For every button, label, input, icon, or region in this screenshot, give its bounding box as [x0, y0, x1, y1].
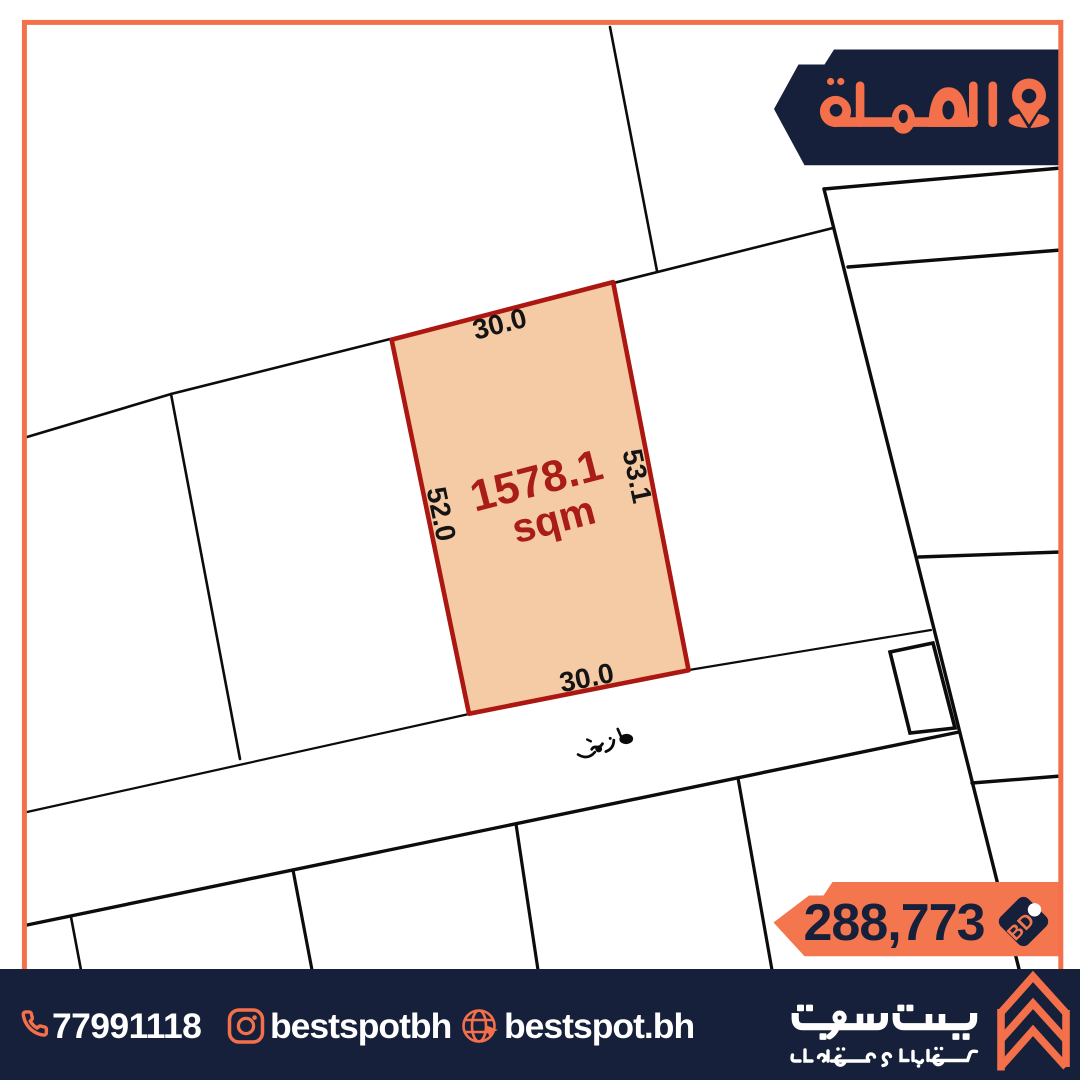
- svg-text:bestspotbh: bestspotbh: [270, 1006, 451, 1046]
- svg-text:bestspot.bh: bestspot.bh: [504, 1006, 694, 1046]
- svg-text:288,773: 288,773: [804, 894, 985, 952]
- svg-text:77991118: 77991118: [52, 1006, 201, 1046]
